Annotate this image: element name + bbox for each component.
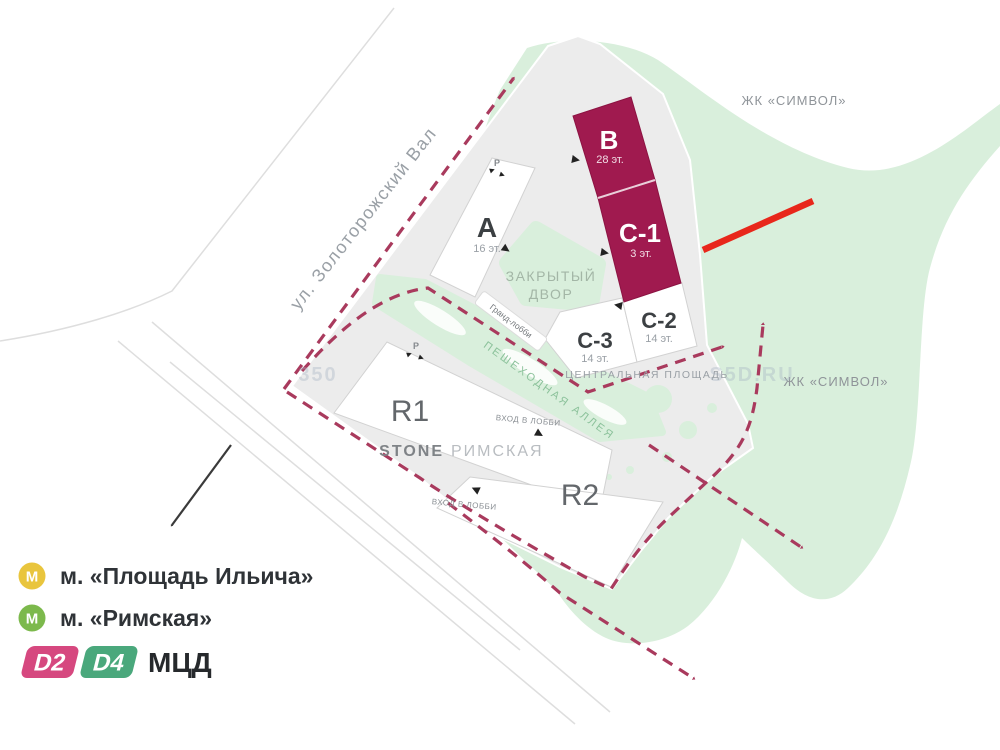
metro-legend-row1: М м. «Площадь Ильича» bbox=[19, 563, 314, 590]
neighbor-label-top: ЖК «СИМВОЛ» bbox=[742, 93, 847, 108]
building-a-label: А bbox=[477, 212, 497, 243]
map-canvas: ул. Золоторожский Вал ЖК «СИМВОЛ» ЖК «СИ… bbox=[0, 0, 1000, 750]
mcd-d4-badge: D4 bbox=[79, 646, 139, 678]
brand-label: STONE bbox=[379, 443, 444, 460]
metro-legend: М м. «Площадь Ильича» М м. «Римская» D2 … bbox=[19, 563, 314, 679]
metro-station-1: м. «Площадь Ильича» bbox=[60, 563, 313, 589]
building-c3-floors: 14 эт. bbox=[581, 353, 609, 365]
building-r2-label: R2 bbox=[561, 479, 599, 512]
metro-station-2: м. «Римская» bbox=[60, 605, 212, 631]
legend-pointer-arrow bbox=[172, 445, 231, 525]
mcd-label: МЦД bbox=[148, 647, 212, 678]
building-r1-label: R1 bbox=[391, 395, 429, 428]
central-square-label: ЦЕНТРАЛЬНАЯ ПЛОЩАДЬ bbox=[565, 369, 728, 381]
watermark-left: 350 bbox=[298, 364, 337, 386]
site-plan-map: ул. Золоторожский Вал ЖК «СИМВОЛ» ЖК «СИ… bbox=[0, 0, 1000, 750]
parking-label-a: P bbox=[494, 158, 500, 168]
brand-project-label: РИМСКАЯ bbox=[451, 443, 544, 460]
building-c1-label: С-1 bbox=[619, 218, 661, 248]
mcd-d2-badge: D2 bbox=[20, 646, 80, 678]
building-c2-label: С-2 bbox=[641, 308, 676, 333]
building-c1-floors: 3 эт. bbox=[630, 248, 651, 260]
parking-label-r1: P bbox=[413, 341, 419, 351]
building-b-floors: 28 эт. bbox=[596, 154, 624, 166]
metro-icon-yellow-letter: М bbox=[26, 569, 39, 586]
metro-icon-green-letter: М bbox=[26, 611, 39, 628]
neighbor-label-right: ЖК «СИМВОЛ» bbox=[784, 374, 889, 389]
courtyard-label-line1: ЗАКРЫТЫЙ bbox=[506, 267, 597, 284]
metro-legend-row2: М м. «Римская» bbox=[19, 605, 213, 632]
building-c2-floors: 14 эт. bbox=[645, 333, 673, 345]
mcd-legend-row: D2 D4 МЦД bbox=[20, 646, 212, 678]
building-a-floors: 16 эт. bbox=[473, 243, 501, 255]
building-b-label: В bbox=[600, 125, 619, 155]
building-c3-label: С-3 bbox=[577, 328, 612, 353]
courtyard-label-line2: ДВОР bbox=[529, 286, 574, 302]
